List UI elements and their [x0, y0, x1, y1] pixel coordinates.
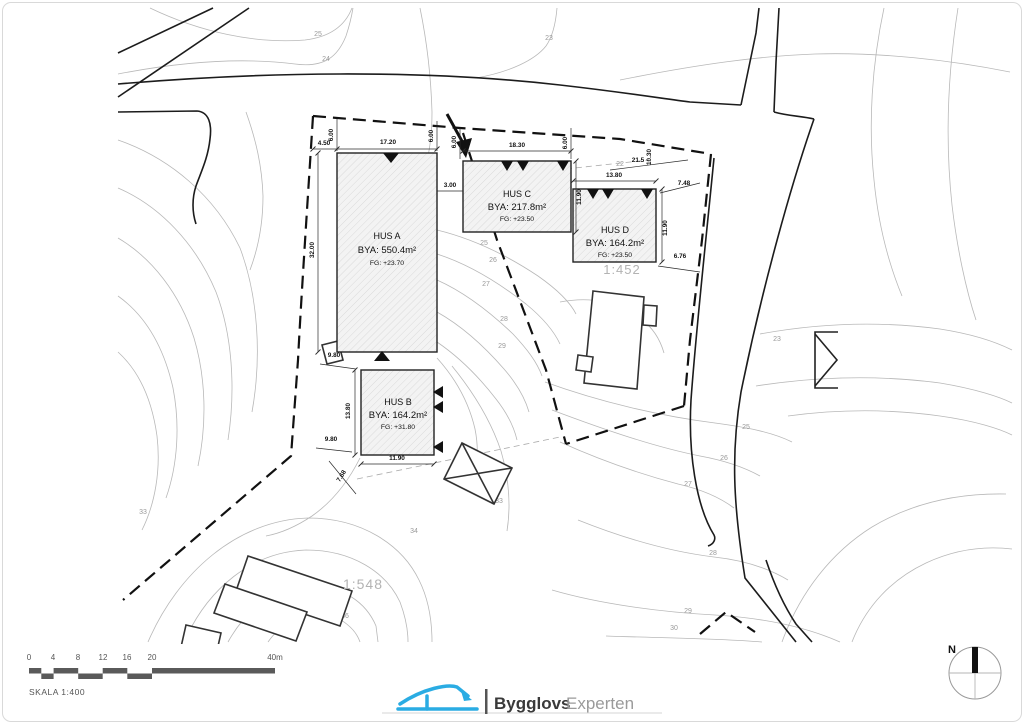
- contour-label: 23: [773, 336, 781, 343]
- scale-tick-4: 4: [51, 653, 56, 662]
- dim-label: 11.90: [389, 455, 405, 462]
- dim-label: 6.00: [428, 129, 435, 142]
- hus-c-bya: BYA: 217.8m²: [488, 202, 546, 213]
- north-arrow: N: [948, 644, 1001, 699]
- logo-text-light: Experten: [566, 694, 634, 713]
- hus-b-fg: FG: +31.80: [381, 424, 415, 431]
- contour-label: 26: [720, 455, 728, 462]
- scale-bar-segments: [29, 668, 275, 679]
- dim-label: 11.90: [662, 220, 669, 236]
- existing-building-east-porch: [576, 355, 593, 372]
- dim-label: 9.80: [328, 352, 341, 359]
- contour-label: 33: [139, 509, 147, 516]
- scale-tick-16: 16: [123, 653, 132, 662]
- compass-needle: [972, 647, 978, 673]
- contour-label: 26: [489, 257, 497, 264]
- contour-label: 29: [498, 343, 506, 350]
- dim-label: 21.5: [632, 157, 645, 164]
- hus-a-name: HUS A: [373, 231, 400, 241]
- existing-buildings: [181, 291, 838, 655]
- contour-label: 25: [742, 424, 750, 431]
- contour-label: 27: [684, 481, 692, 488]
- dim-label: 6.76: [674, 253, 687, 260]
- dim-label: 13.80: [606, 172, 622, 179]
- hus-d-name: HUS D: [601, 225, 630, 235]
- scale-tick-0: 0: [27, 653, 32, 662]
- scale-bar: 0 4 8 12 16 20 40m SKALA 1:400: [27, 653, 283, 697]
- transformer-symbol: [815, 332, 838, 388]
- site-plan-drawing: 25 24 23 22 25 26 27 28 29 25 26 27 28 2…: [0, 0, 1024, 724]
- dim-label: 3.00: [444, 182, 457, 189]
- parcel-label-1-548: 1:548: [343, 576, 383, 592]
- contour-label: 30: [670, 625, 678, 632]
- dim-label: 10.30: [646, 149, 653, 165]
- hus-d-bya: BYA: 164.2m²: [586, 238, 644, 249]
- road-lines: [118, 8, 814, 642]
- existing-building-southwest-3: [181, 625, 221, 655]
- scale-tick-12: 12: [99, 653, 108, 662]
- hus-c-fg: FG: +23.50: [500, 216, 534, 223]
- contour-label: 28: [709, 550, 717, 557]
- scale-tick-20: 20: [148, 653, 157, 662]
- hus-c-name: HUS C: [503, 189, 532, 199]
- north-label: N: [948, 644, 956, 656]
- contour-label: 23: [545, 35, 553, 42]
- logo-text-bold: Bygglovs: [494, 694, 571, 713]
- dim-label: 7.48: [678, 180, 691, 187]
- scale-label: SKALA 1:400: [29, 687, 85, 697]
- contour-label: 22: [616, 161, 624, 168]
- contour-label: 27: [482, 281, 490, 288]
- scale-tick-40m: 40m: [267, 653, 283, 662]
- dim-label: 32.00: [309, 242, 316, 258]
- property-boundary: [123, 116, 755, 634]
- dim-label: 11.90: [576, 189, 583, 205]
- dim-label: 6.00: [328, 128, 335, 141]
- hus-d-fg: FG: +23.50: [598, 252, 632, 259]
- hus-b-bya: BYA: 164.2m²: [369, 410, 427, 421]
- contour-label: 29: [684, 608, 692, 615]
- dim-label: 6.00: [451, 135, 458, 148]
- dim-label: 13.80: [345, 403, 352, 419]
- dim-label: 17.20: [380, 139, 396, 146]
- dim-label: 6.00: [562, 136, 569, 149]
- logo-house-icon: [398, 686, 477, 709]
- contour-label: 25: [314, 31, 322, 38]
- contour-label: 25: [480, 240, 488, 247]
- scale-tick-8: 8: [76, 653, 81, 662]
- contour-lines: [118, 8, 1012, 642]
- dim-label: 18.30: [509, 142, 525, 149]
- hus-a-fg: FG: +23.70: [370, 260, 404, 267]
- logo: Bygglovs Experten: [382, 686, 662, 714]
- contour-label: 24: [322, 56, 330, 63]
- hus-a-bya: BYA: 550.4m²: [358, 245, 416, 256]
- hus-b-name: HUS B: [384, 397, 412, 407]
- demolition-building-x: [444, 443, 512, 504]
- existing-building-east: [584, 291, 644, 389]
- parcel-label-1-452: 1:452: [603, 262, 641, 277]
- existing-building-east-annex: [643, 305, 657, 326]
- contour-label: 28: [500, 316, 508, 323]
- logo-divider: [485, 689, 488, 714]
- contour-elevation-labels: 25 24 23 22 25 26 27 28 29 25 26 27 28 2…: [139, 31, 781, 632]
- contour-label: 34: [410, 528, 418, 535]
- dim-label: 9.80: [325, 436, 338, 443]
